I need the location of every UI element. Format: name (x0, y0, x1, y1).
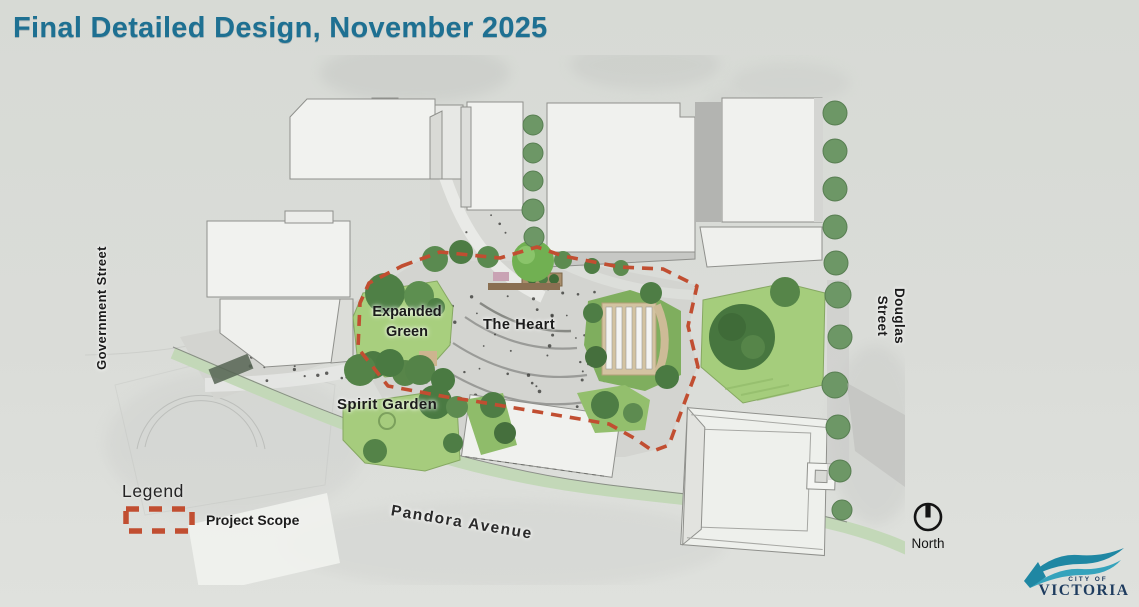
slide: Final Detailed Design, November 2025 (0, 0, 1139, 607)
logo-line2: VICTORIA (1039, 582, 1128, 599)
legend: Legend Project Scope (122, 481, 332, 535)
area-label-spirit-garden: Spirit Garden (337, 396, 437, 413)
project-scope-swatch-icon (122, 505, 196, 535)
north-arrow-icon (910, 499, 946, 535)
legend-item-project-scope: Project Scope (122, 505, 332, 535)
area-label-expanded-green: Expanded Green (350, 302, 464, 342)
legend-heading: Legend (122, 481, 332, 502)
street-label-douglas: Douglas Street (872, 276, 908, 356)
area-label-the-heart: The Heart (483, 317, 555, 333)
page-title: Final Detailed Design, November 2025 (13, 12, 548, 45)
street-label-government: Government Street (94, 224, 109, 392)
north-label: North (897, 536, 959, 551)
legend-item-label: Project Scope (206, 512, 299, 528)
north-indicator: North (897, 499, 959, 551)
city-of-victoria-logo: CITY OF VICTORIA (1018, 545, 1128, 601)
